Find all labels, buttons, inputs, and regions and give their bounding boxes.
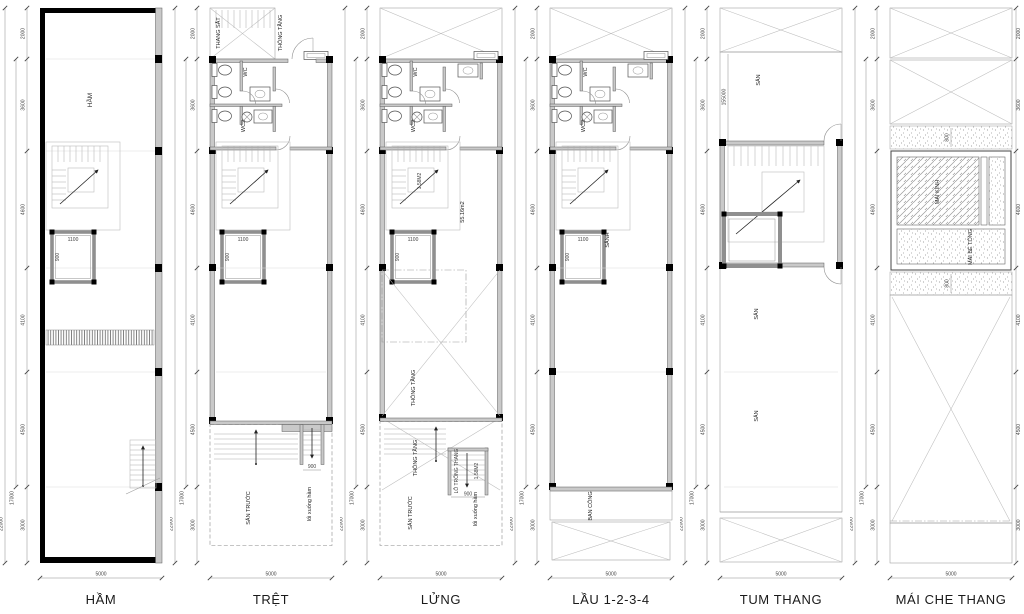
awning-x bbox=[720, 518, 842, 562]
san-truoc-label: SÂN TRƯỚC bbox=[407, 496, 414, 529]
dimension-label: 155000 bbox=[721, 88, 727, 105]
stair-opening: LỖ TRỐNG THANG 1.58M2 900 bbox=[448, 448, 488, 498]
dimension-label: 4100 bbox=[20, 314, 26, 325]
dimension-label: 4500 bbox=[360, 424, 366, 435]
panel-title-tum: TUM THANG bbox=[740, 592, 822, 607]
mai-be-tong-label: MÁI BÊ TÔNG bbox=[966, 229, 974, 265]
dimension-label: 17000 bbox=[9, 491, 15, 505]
dimension-label: 4500 bbox=[870, 424, 876, 435]
dimension-label: 5000 bbox=[265, 572, 276, 578]
dimension-label: 2000 bbox=[700, 28, 706, 39]
dimension-chain: 2000360046004100450030001700022000 bbox=[510, 6, 539, 565]
dimension-label: 17000 bbox=[859, 491, 865, 505]
front-yard-boundary bbox=[380, 422, 502, 546]
dimension-label: 22000 bbox=[340, 517, 344, 531]
room-label-ham: HẦM bbox=[84, 93, 94, 107]
thong-tang-label: THÔNG TẦNG bbox=[410, 370, 417, 407]
dimension-label: 4100 bbox=[870, 314, 876, 325]
awning-x bbox=[552, 522, 670, 560]
dimension-label: 4100 bbox=[700, 314, 706, 325]
steel-stair-void: THANG SẮT THÔNG TẦNG bbox=[210, 8, 284, 59]
dimension-label: 800 bbox=[945, 279, 951, 288]
dimension-label: 3600 bbox=[360, 99, 366, 110]
panel-ham: 2000360046004100450030001700022000 HẦM 5… bbox=[0, 0, 170, 614]
panel-title-tret: TRỆT bbox=[253, 592, 289, 607]
lo-trong-thang-label: LỖ TRỐNG THANG bbox=[453, 448, 460, 493]
dimension-label: 3600 bbox=[190, 99, 196, 110]
width-dimension: 5000 bbox=[718, 572, 844, 581]
dimension-label: 3000 bbox=[20, 519, 26, 530]
dimension-label: 5000 bbox=[435, 572, 446, 578]
dimension-label: 4100 bbox=[530, 314, 536, 325]
dimension-label: 2000 bbox=[530, 28, 536, 39]
dimension-chain: 200036004600410045003000 bbox=[1014, 6, 1022, 565]
stair-room bbox=[719, 124, 843, 284]
dimension-label: 3600 bbox=[870, 99, 876, 110]
dimension-label: 3000 bbox=[1016, 519, 1022, 530]
dimension-label: 800 bbox=[945, 133, 951, 142]
panel-lung: 2000360046004100450030001700022000 1.58M… bbox=[340, 0, 510, 614]
dimension-label: 17000 bbox=[349, 491, 355, 505]
dimension-label: 22000 bbox=[850, 517, 854, 531]
thong-tang-label: THÔNG TẦNG bbox=[412, 440, 419, 477]
dimension-label: 4600 bbox=[360, 204, 366, 215]
ban-cong-label: BAN CÔNG bbox=[587, 491, 594, 520]
dimension-label: 3600 bbox=[700, 99, 706, 110]
dimension-label: 3000 bbox=[700, 519, 706, 530]
dimension-label: 3600 bbox=[530, 99, 536, 110]
floor-area-label: 55.16m2 bbox=[460, 201, 466, 222]
concrete-roof bbox=[897, 229, 1005, 264]
front-yard-boundary bbox=[210, 425, 332, 546]
entry-steps bbox=[214, 430, 298, 465]
dimension-chain: 2000360046004100450030001700022000 bbox=[170, 6, 199, 565]
width-dimension: 5000 bbox=[208, 572, 334, 581]
san-label: SÂN bbox=[755, 74, 762, 85]
thang-sat-label: THANG SẮT bbox=[214, 17, 222, 49]
dimension-label: 900 bbox=[308, 464, 317, 470]
dimension-label: 22000 bbox=[680, 517, 684, 531]
width-dimension: 5000 bbox=[378, 572, 504, 581]
dimension-label: 4500 bbox=[530, 424, 536, 435]
dimension-label: 2000 bbox=[20, 28, 26, 39]
panel-tret: 2000360046004100450030001700022000 THANG… bbox=[170, 0, 340, 614]
dimension-label: 17000 bbox=[689, 491, 695, 505]
dimension-label: 4600 bbox=[870, 204, 876, 215]
terrace-boundary bbox=[720, 52, 842, 512]
dimension-label: 2000 bbox=[190, 28, 196, 39]
width-dimension: 5000 bbox=[38, 572, 164, 581]
dimension-label: 900 bbox=[464, 492, 473, 498]
dimension-label: 3000 bbox=[870, 519, 876, 530]
void-x-strip bbox=[890, 8, 1012, 58]
width-dimension: 5000 bbox=[548, 572, 674, 581]
san-label: SÂN bbox=[753, 308, 760, 319]
dimension-chain: 2000360046004100450030001700022000 bbox=[850, 6, 879, 565]
dimension-label: 22000 bbox=[0, 517, 4, 531]
dimension-label: 3600 bbox=[1016, 99, 1022, 110]
panel-title-lau: LẦU 1-2-3-4 bbox=[572, 592, 649, 607]
dimension-label: 4500 bbox=[20, 424, 26, 435]
basement-stair bbox=[126, 440, 160, 494]
dimension-label: 3000 bbox=[360, 519, 366, 530]
dimension-label: 5000 bbox=[775, 572, 786, 578]
dimension-label: 2000 bbox=[870, 28, 876, 39]
void-x-strip bbox=[890, 60, 1012, 124]
dimension-label: 4600 bbox=[1016, 204, 1022, 215]
stair-roof: MÁI KÍNH MÁI BÊ TÔNG bbox=[891, 151, 1011, 270]
stair-area-label: 1.58M2 bbox=[417, 172, 423, 189]
loi-xuong-ham-label: lối xuống hầm bbox=[473, 491, 479, 526]
dimension-label: 5000 bbox=[945, 572, 956, 578]
balcony bbox=[550, 491, 672, 520]
san-label: SÂN bbox=[753, 410, 760, 421]
dimension-label: 4100 bbox=[190, 314, 196, 325]
mai-kinh-label: MÁI KÍNH bbox=[934, 180, 941, 204]
panel-title-ham: HẦM bbox=[86, 592, 117, 607]
dimension-label: 4500 bbox=[190, 424, 196, 435]
roof-edge bbox=[890, 523, 1012, 563]
dimension-label: 4600 bbox=[530, 204, 536, 215]
dimension-chain: 2000360046004100450030001700022000 bbox=[680, 6, 709, 565]
dimension-label: 17000 bbox=[179, 491, 185, 505]
dimension-chain: 2000360046004100450030001700022000 bbox=[340, 6, 369, 565]
dimension-label: 4600 bbox=[700, 204, 706, 215]
dimension-label: 5000 bbox=[95, 572, 106, 578]
panel-tum: 2000360046004100450030001700022000 15500… bbox=[680, 0, 850, 614]
sanh-label: SẢNH bbox=[604, 232, 611, 247]
panel-title-lung: LỬNG bbox=[421, 592, 461, 607]
sub-dimension: 155000 bbox=[721, 54, 728, 141]
panel-lau: 2000360046004100450030001700022000 SẢNH … bbox=[510, 0, 680, 614]
stair-hole-area-label: 1.58M2 bbox=[474, 462, 480, 479]
dimension-label: 4600 bbox=[20, 204, 26, 215]
ramp-hatch bbox=[46, 330, 154, 345]
panel-title-mai: MÁI CHE THANG bbox=[896, 592, 1007, 607]
san-truoc-label: SÂN TRƯỚC bbox=[245, 491, 252, 524]
dimension-label: 22000 bbox=[170, 517, 174, 531]
panel-mai: 2000360046004100450030001700022000 800 M… bbox=[850, 0, 1024, 614]
void-x-strip bbox=[720, 8, 842, 52]
dimension-label: 3600 bbox=[20, 99, 26, 110]
dimension-chain: 2000360046004100450030001700022000 bbox=[0, 6, 29, 565]
width-dimension: 5000 bbox=[888, 572, 1014, 581]
loi-xuong-ham-label: lối xuống hầm bbox=[307, 486, 313, 521]
dimension-label: 17000 bbox=[519, 491, 525, 505]
open-roof-x bbox=[890, 295, 1012, 523]
dimension-label: 3000 bbox=[530, 519, 536, 530]
thong-tang-label: THÔNG TẦNG bbox=[277, 15, 284, 52]
floor-plan-sheet: 1100 900 WC WC2 200036004600410045003000… bbox=[0, 0, 1024, 614]
dimension-label: 2000 bbox=[360, 28, 366, 39]
dimension-label: 3000 bbox=[190, 519, 196, 530]
dimension-label: 4600 bbox=[190, 204, 196, 215]
dimension-label: 22000 bbox=[510, 517, 514, 531]
dimension-label: 4100 bbox=[360, 314, 366, 325]
dimension-label: 5000 bbox=[605, 572, 616, 578]
dimension-label: 4500 bbox=[700, 424, 706, 435]
dimension-label: 4100 bbox=[1016, 314, 1022, 325]
dimension-label: 4500 bbox=[1016, 424, 1022, 435]
dimension-label: 2000 bbox=[1016, 28, 1022, 39]
